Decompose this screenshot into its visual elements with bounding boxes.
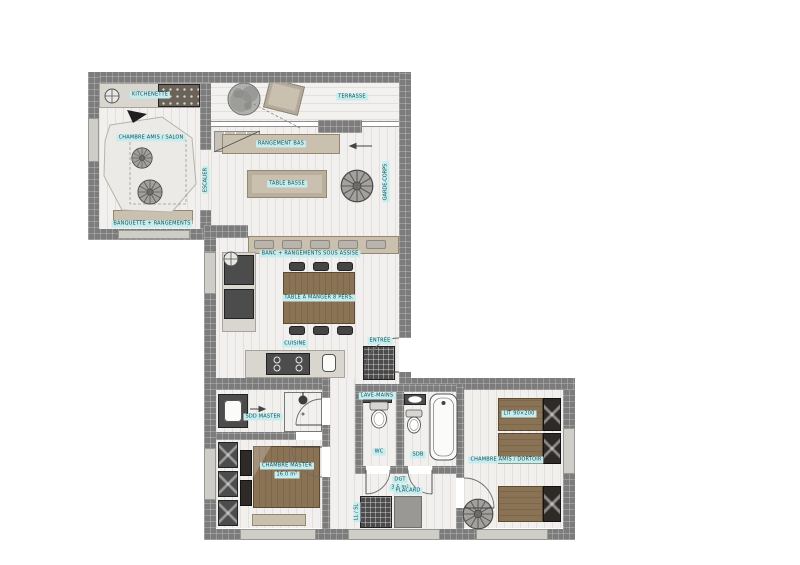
dorm-bed-pillow <box>543 486 561 522</box>
master-bed-pillow <box>240 450 252 476</box>
entry-doormat <box>363 346 395 380</box>
label-bed-size: LIT 90×200 <box>502 411 537 418</box>
wall-segment <box>322 477 330 529</box>
terrace-window <box>211 121 318 127</box>
washer-dryer-column <box>360 496 392 528</box>
label-dortoir: CHAMBRE AMIS / DORTOIR <box>468 457 543 464</box>
dining-chair <box>289 262 305 271</box>
label-master-area: 16.0 m² <box>275 472 300 479</box>
window <box>204 448 216 500</box>
banquette-cushion <box>254 240 274 249</box>
dining-chair <box>313 262 329 271</box>
wall-segment <box>355 466 366 474</box>
label-wc-shelf: LAVE-MAINS <box>359 393 396 400</box>
label-stairs: ESCALIER <box>203 166 210 194</box>
wall-segment <box>456 384 464 478</box>
wall-segment <box>216 432 296 440</box>
label-kitchen: CUISINE <box>282 341 308 348</box>
wall-segment <box>399 72 411 338</box>
wall-segment <box>204 225 248 238</box>
wall-segment <box>456 508 464 529</box>
label-coffee-table: TABLE BASSE <box>267 181 307 188</box>
window <box>240 529 316 540</box>
master-bed-pillow <box>240 480 252 506</box>
dining-chair <box>289 326 305 335</box>
wall-segment <box>88 72 411 83</box>
dorm-bed-pillow <box>543 433 561 464</box>
wall-segment <box>390 466 408 474</box>
label-salon-storage: RANGEMENT BAS <box>256 141 306 148</box>
label-guest-bench: BANQUETTE + RANGEMENTS <box>111 221 192 228</box>
master-bench <box>252 514 306 526</box>
wall-segment <box>432 466 464 474</box>
banquette-cushion <box>310 240 330 249</box>
sdd-sink <box>224 400 242 422</box>
shower-tray <box>284 392 322 432</box>
label-sdb: SDB <box>410 452 425 459</box>
wall-segment <box>318 120 362 133</box>
label-dining-table: TABLE À MANGER 8 PERS. <box>282 295 355 302</box>
label-terrace: TERRASSE <box>336 94 368 101</box>
label-dining-bench: BANC + RANGEMENTS SOUS ASSISE <box>260 251 361 258</box>
stove <box>266 353 310 375</box>
wall-segment <box>200 83 211 150</box>
master-wardrobe <box>218 471 238 497</box>
window <box>476 529 548 540</box>
label-guest-room: CHAMBRE AMIS / SALON <box>117 135 186 142</box>
wall-segment <box>216 378 330 390</box>
wall-segment <box>396 392 404 466</box>
label-corridor: DGT <box>392 477 407 484</box>
terrace-window-2 <box>362 121 399 127</box>
banquette-cushion <box>366 240 386 249</box>
kitchen-sink <box>322 354 336 372</box>
dorm-bed <box>498 486 543 522</box>
label-wc: WC <box>373 449 386 456</box>
wall-segment <box>322 425 330 447</box>
dorm-bed-pillow <box>543 398 561 431</box>
window <box>563 428 575 474</box>
terrace-floor <box>211 83 399 120</box>
banquette-cushion <box>338 240 358 249</box>
label-railing: GARDE-CORPS <box>383 162 390 203</box>
oven-appliance <box>224 255 254 285</box>
bath-vanity <box>404 394 426 405</box>
master-wardrobe <box>218 500 238 526</box>
floor-plan: KITCHENETTE CHAMBRE AMIS / SALON BANQUET… <box>0 0 800 565</box>
dining-chair <box>337 326 353 335</box>
dining-chair <box>337 262 353 271</box>
dining-chair <box>313 326 329 335</box>
window <box>204 252 216 294</box>
window <box>348 529 440 540</box>
label-master-room: CHAMBRE MASTER <box>260 463 314 470</box>
window <box>118 230 190 239</box>
corridor-closet <box>394 496 422 528</box>
label-kitchenette: KITCHENETTE <box>130 92 170 99</box>
corridor-arm-floor <box>330 378 355 474</box>
wall-segment <box>355 384 464 392</box>
label-entry: ENTRÉE <box>368 338 393 345</box>
fridge-appliance <box>224 289 254 319</box>
master-wardrobe <box>218 442 238 468</box>
banquette-cushion <box>282 240 302 249</box>
label-sdd-master: SDD MASTER <box>243 414 282 421</box>
label-closet: PLACARD <box>394 488 423 495</box>
window <box>88 118 99 162</box>
wall-segment <box>322 378 330 398</box>
label-washer: LL / SL <box>354 502 361 522</box>
